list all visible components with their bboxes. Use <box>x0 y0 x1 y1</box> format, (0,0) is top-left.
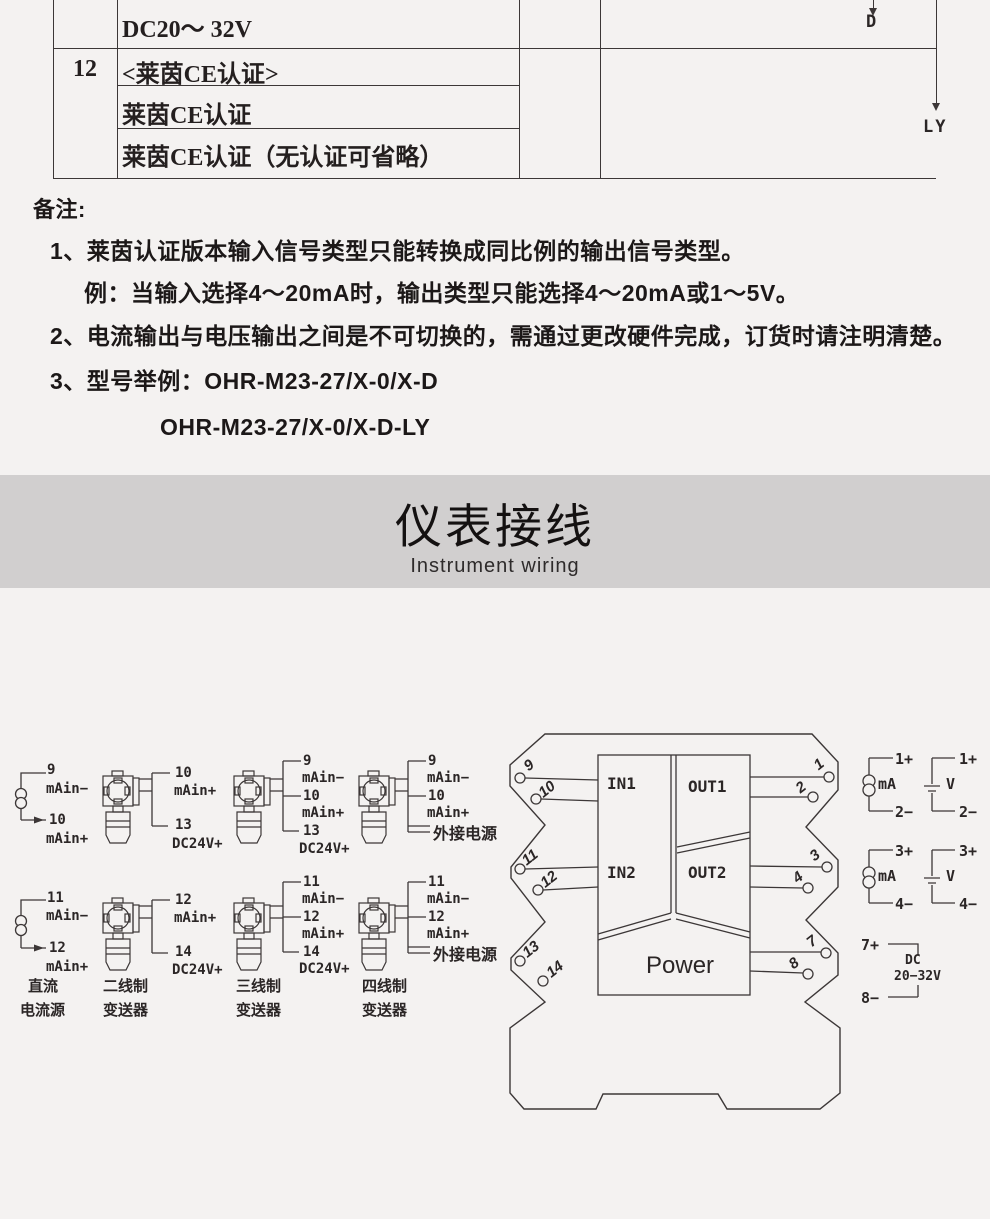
table-cell-ce-option2: 莱茵CE认证（无认证可省略） <box>122 137 443 172</box>
tw2-top-sig2: DC24V+ <box>172 836 223 852</box>
note-line-1: 1、莱茵认证版本输入信号类型只能转换成同比例的输出信号类型。 <box>50 232 745 266</box>
tw2-top-term1: 10 <box>175 765 192 781</box>
src-top-sig2: mAin+ <box>46 831 88 847</box>
tw2-bot-term2: 14 <box>175 944 192 960</box>
table-hline-1 <box>53 48 936 49</box>
tw3-top-sig2: mAin+ <box>302 805 344 821</box>
src-bot-term1: 11 <box>47 890 64 906</box>
src-bot-sig2: mAin+ <box>46 959 88 975</box>
tw2-name-line1: 二线制 <box>103 975 148 996</box>
supply-range-label: 20−32V <box>894 969 941 984</box>
supply-term-minus: 8− <box>861 989 879 1007</box>
note-line-3: 3、型号举例：OHR-M23-27/X-0/X-D <box>50 362 438 396</box>
supply-dc-label: DC <box>905 953 921 968</box>
module-power-label: Power <box>646 952 714 980</box>
leader-line-ly <box>936 0 937 104</box>
tw4-bot-sig1: mAin− <box>427 891 469 907</box>
src-bot-term2: 12 <box>49 940 66 956</box>
tw4-bot-term1: 11 <box>428 874 445 890</box>
tw3-bot-term1: 11 <box>303 874 320 890</box>
tw3-top-term1: 9 <box>303 753 311 769</box>
tw3-bot-sig1: mAin− <box>302 891 344 907</box>
module-out1-label: OUT1 <box>688 777 727 796</box>
src-top-sig1: mAin− <box>46 781 88 797</box>
section-banner: 仪表接线 Instrument wiring <box>0 475 990 588</box>
tw4-top-term1: 9 <box>428 753 436 769</box>
datasheet-page: { "table": { "col_index": "12", "row_pow… <box>0 0 990 1219</box>
src-name-line2: 电流源 <box>20 999 65 1020</box>
model-code-ly: LY <box>923 117 947 137</box>
tw3-bot-sig3: DC24V+ <box>299 961 350 977</box>
wiring-diagram-svg <box>0 720 990 1130</box>
src-top-term2: 10 <box>49 812 66 828</box>
note-line-3-model2: OHR-M23-27/X-0/X-D-LY <box>160 414 430 441</box>
tw4-top-ext-power: 外接电源 <box>433 820 497 844</box>
note-line-1-example: 例：当输入选择4～20mA时，输出类型只能选择4～20mA或1～5V。 <box>84 274 799 308</box>
tw3-top-term3: 13 <box>303 823 320 839</box>
notes-heading: 备注: <box>33 192 86 224</box>
tw3-top-term2: 10 <box>303 788 320 804</box>
tw2-bot-sig1: mAin+ <box>174 910 216 926</box>
meter4-term-minus: 4− <box>959 895 977 913</box>
tw4-name-line1: 四线制 <box>362 975 407 996</box>
tw3-bot-term2: 12 <box>303 909 320 925</box>
tw2-name-line2: 变送器 <box>103 999 148 1020</box>
tw4-top-term2: 10 <box>428 788 445 804</box>
arrow-ly-icon <box>932 103 940 111</box>
tw3-name-line1: 三线制 <box>236 975 281 996</box>
tw3-bot-sig2: mAin+ <box>302 926 344 942</box>
table-vline-4 <box>600 0 601 178</box>
meter3-term-plus: 3+ <box>895 842 913 860</box>
table-row-index: 12 <box>73 56 97 83</box>
src-name-line1: 直流 <box>28 975 58 996</box>
tw4-top-sig2: mAin+ <box>427 805 469 821</box>
section-title: 仪表接线 <box>0 488 990 557</box>
tw3-bot-term3: 14 <box>303 944 320 960</box>
tw4-top-sig1: mAin− <box>427 770 469 786</box>
table-hline-bottom <box>53 178 936 179</box>
meter3-ma-label: mA <box>878 867 896 885</box>
tw2-top-term2: 13 <box>175 817 192 833</box>
meter2-term-minus: 2− <box>959 803 977 821</box>
model-code-d: D <box>866 12 876 32</box>
table-vline-3 <box>519 0 520 178</box>
src-bot-sig1: mAin− <box>46 908 88 924</box>
section-subtitle: Instrument wiring <box>0 555 990 578</box>
meter4-term-plus: 3+ <box>959 842 977 860</box>
tw3-name-line2: 变送器 <box>236 999 281 1020</box>
tw2-top-sig1: mAin+ <box>174 783 216 799</box>
tw3-top-sig3: DC24V+ <box>299 841 350 857</box>
tw3-top-sig1: mAin− <box>302 770 344 786</box>
module-in1-label: IN1 <box>607 774 636 793</box>
meter1-term-plus: 1+ <box>895 750 913 768</box>
meter1-term-minus: 2− <box>895 803 913 821</box>
tw4-name-line2: 变送器 <box>362 999 407 1020</box>
note-line-2: 2、电流输出与电压输出之间是不可切换的，需通过更改硬件完成，订货时请注明清楚。 <box>50 317 956 351</box>
module-out2-label: OUT2 <box>688 863 727 882</box>
table-vline-2 <box>117 0 118 178</box>
table-cell-ce-option1: 莱茵CE认证 <box>122 95 251 130</box>
table-vline-1 <box>53 0 54 178</box>
tw4-bot-ext-power: 外接电源 <box>433 941 497 965</box>
tw2-bot-sig2: DC24V+ <box>172 962 223 978</box>
table-cell-ce-header: <莱茵CE认证> <box>122 54 279 89</box>
tw2-bot-term1: 12 <box>175 892 192 908</box>
tw4-bot-term2: 12 <box>428 909 445 925</box>
tw4-bot-sig2: mAin+ <box>427 926 469 942</box>
meter1-ma-label: mA <box>878 775 896 793</box>
meter3-term-minus: 4− <box>895 895 913 913</box>
src-top-term1: 9 <box>47 762 55 778</box>
supply-term-plus: 7+ <box>861 936 879 954</box>
module-in2-label: IN2 <box>607 863 636 882</box>
meter2-term-plus: 1+ <box>959 750 977 768</box>
table-cell-power-supply: DC20～ 32V <box>122 9 252 44</box>
meter2-v-label: V <box>946 775 955 793</box>
meter4-v-label: V <box>946 867 955 885</box>
